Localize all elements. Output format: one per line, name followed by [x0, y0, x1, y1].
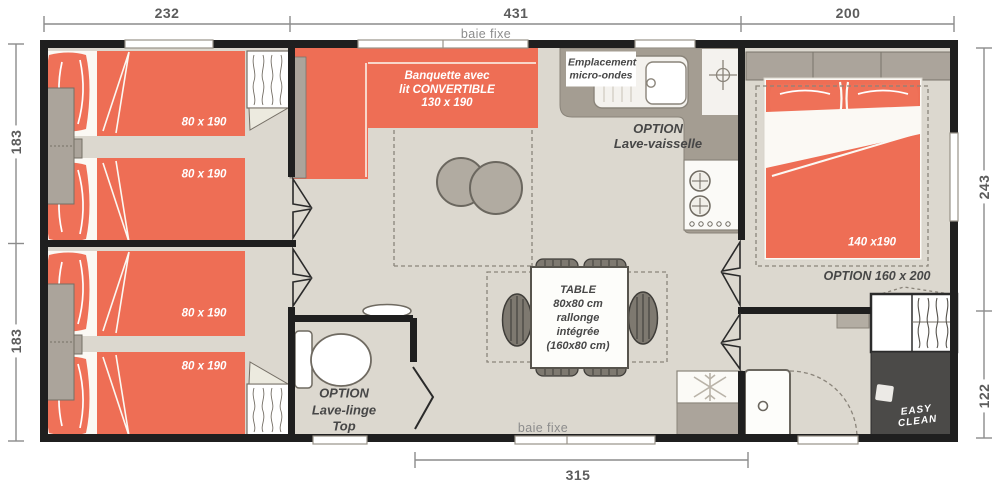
table-label-line4: intégrée — [547, 325, 610, 339]
master-bedroom — [746, 52, 952, 266]
table-label: TABLE 80x80 cm rallonge intégrée (160x80… — [547, 283, 610, 353]
table-label-line1: TABLE — [547, 283, 610, 297]
banquette-label-line3: 130 x 190 — [399, 97, 495, 111]
shower-tray-icon — [875, 384, 894, 402]
toilet-icon — [295, 331, 371, 388]
banquette-label-line1: Banquette avec — [399, 70, 495, 84]
washer-option-line3: Top — [312, 418, 376, 435]
microwave-label-line1: Emplacement — [568, 57, 634, 70]
fridge-icon — [677, 371, 742, 403]
dim-left-183a: 183 — [8, 126, 24, 159]
dishwasher-option-line1: OPTION — [614, 121, 702, 136]
dim-top-232: 232 — [155, 5, 180, 21]
bed-size-label: 80 x 190 — [182, 168, 227, 182]
chair-icon — [503, 294, 532, 346]
dim-top-200: 200 — [836, 5, 861, 21]
master-bed-size-label: 140 x190 — [848, 236, 896, 250]
double-bed-icon — [764, 78, 922, 260]
dressing-wardrobe-icon — [871, 287, 957, 352]
dim-left-183b: 183 — [8, 325, 24, 358]
table-label-line2: 80x80 cm — [547, 297, 610, 311]
dim-bottom-315: 315 — [566, 467, 591, 483]
dim-top-431: 431 — [504, 5, 529, 21]
banquette-label-line2: lit CONVERTIBLE — [399, 83, 495, 97]
stove-icon — [684, 160, 741, 230]
master-bed-option-label: OPTION 160 x 200 — [823, 269, 930, 283]
baie-fixe-top-label: baie fixe — [461, 27, 511, 41]
counter-gap — [702, 49, 741, 115]
bed-size-label: 80 x 190 — [182, 360, 227, 374]
dishwasher-option-line2: Lave-vaisselle — [614, 136, 702, 151]
cabinet-icon — [677, 403, 742, 438]
bed-size-label: 80 x 190 — [182, 116, 227, 130]
washer-option-label: OPTION Lave-linge Top — [312, 385, 376, 435]
dishwasher-option-label: OPTION Lave-vaisselle — [614, 121, 702, 151]
microwave-label: Emplacement micro-ondes — [566, 52, 636, 87]
floor-plan: 232 431 200 183 183 243 122 315 baie fix… — [0, 0, 1000, 488]
baie-fixe-bottom-label: baie fixe — [518, 421, 568, 435]
table-label-line3: rallonge — [547, 311, 610, 325]
headboard-icon — [746, 52, 952, 80]
faucet-icon — [647, 79, 655, 87]
banquette-label: Banquette avec lit CONVERTIBLE 130 x 190 — [399, 70, 495, 111]
dim-right-243: 243 — [976, 171, 992, 204]
chair-icon — [629, 292, 658, 344]
bed-size-label: 80 x 190 — [182, 307, 227, 321]
washer-option-line1: OPTION — [312, 385, 376, 402]
dim-right-122: 122 — [976, 380, 992, 413]
bed-icon — [46, 251, 246, 336]
washer-option-line2: Lave-linge — [312, 402, 376, 419]
table-label-line5: (160x80 cm) — [547, 339, 610, 353]
entrance-threshold — [798, 436, 858, 444]
microwave-label-line2: micro-ondes — [568, 70, 634, 83]
